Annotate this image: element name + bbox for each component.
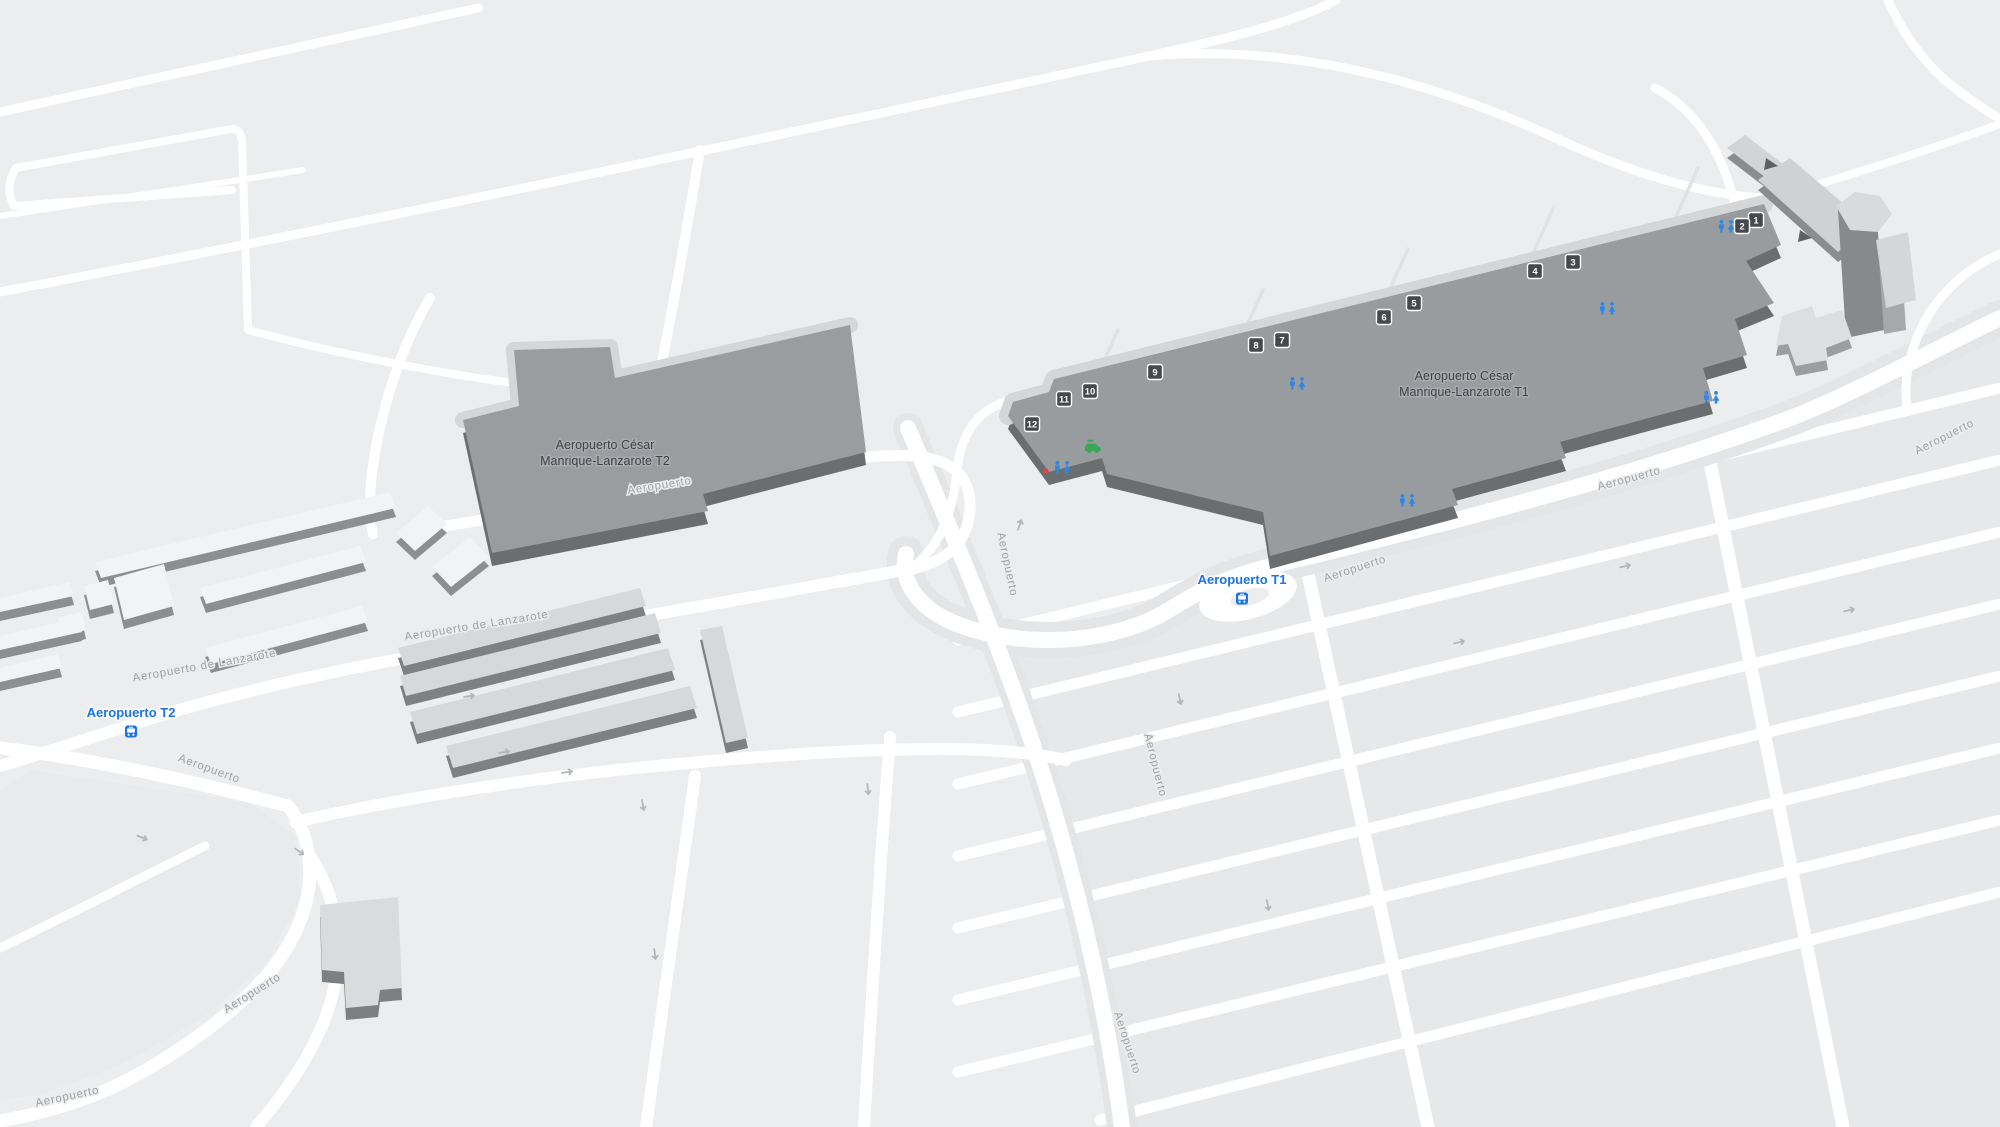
gate-badge[interactable]: 6 — [1377, 310, 1392, 325]
gate-badge[interactable]: 3 — [1566, 255, 1581, 270]
svg-text:5: 5 — [1411, 298, 1417, 309]
gate-badge[interactable]: 10 — [1083, 384, 1098, 399]
bus-stop-label: Aeropuerto T2 — [87, 705, 176, 720]
svg-text:6: 6 — [1381, 312, 1386, 323]
gate-badge[interactable]: 12 — [1025, 417, 1040, 432]
bus-icon[interactable] — [125, 726, 137, 738]
svg-text:8: 8 — [1253, 340, 1258, 351]
map-svg[interactable]: AeropuertoAeropuertoAeropuertoAeropuerto… — [0, 0, 2000, 1127]
gate-badge[interactable]: 9 — [1148, 365, 1163, 380]
svg-text:12: 12 — [1027, 419, 1038, 430]
svg-text:11: 11 — [1059, 394, 1070, 405]
svg-text:10: 10 — [1085, 386, 1096, 397]
gate-badge[interactable]: 2 — [1735, 219, 1750, 234]
svg-text:4: 4 — [1532, 266, 1538, 277]
airport-map-canvas[interactable]: AeropuertoAeropuertoAeropuertoAeropuerto… — [0, 0, 2000, 1127]
svg-text:9: 9 — [1152, 367, 1157, 378]
svg-text:1: 1 — [1753, 215, 1759, 226]
svg-text:3: 3 — [1570, 257, 1575, 268]
bus-stop-label: Aeropuerto T1 — [1198, 572, 1287, 587]
gate-badge[interactable]: 5 — [1407, 296, 1422, 311]
svg-text:7: 7 — [1279, 335, 1284, 346]
poi-marker-dot[interactable] — [1043, 468, 1048, 473]
svg-text:2: 2 — [1739, 221, 1744, 232]
gate-badge[interactable]: 8 — [1249, 338, 1264, 353]
bus-icon[interactable] — [1236, 593, 1248, 605]
gate-badge[interactable]: 4 — [1528, 264, 1543, 279]
gate-badge[interactable]: 1 — [1749, 213, 1764, 228]
gate-badge[interactable]: 11 — [1057, 392, 1072, 407]
gate-badge[interactable]: 7 — [1275, 333, 1290, 348]
